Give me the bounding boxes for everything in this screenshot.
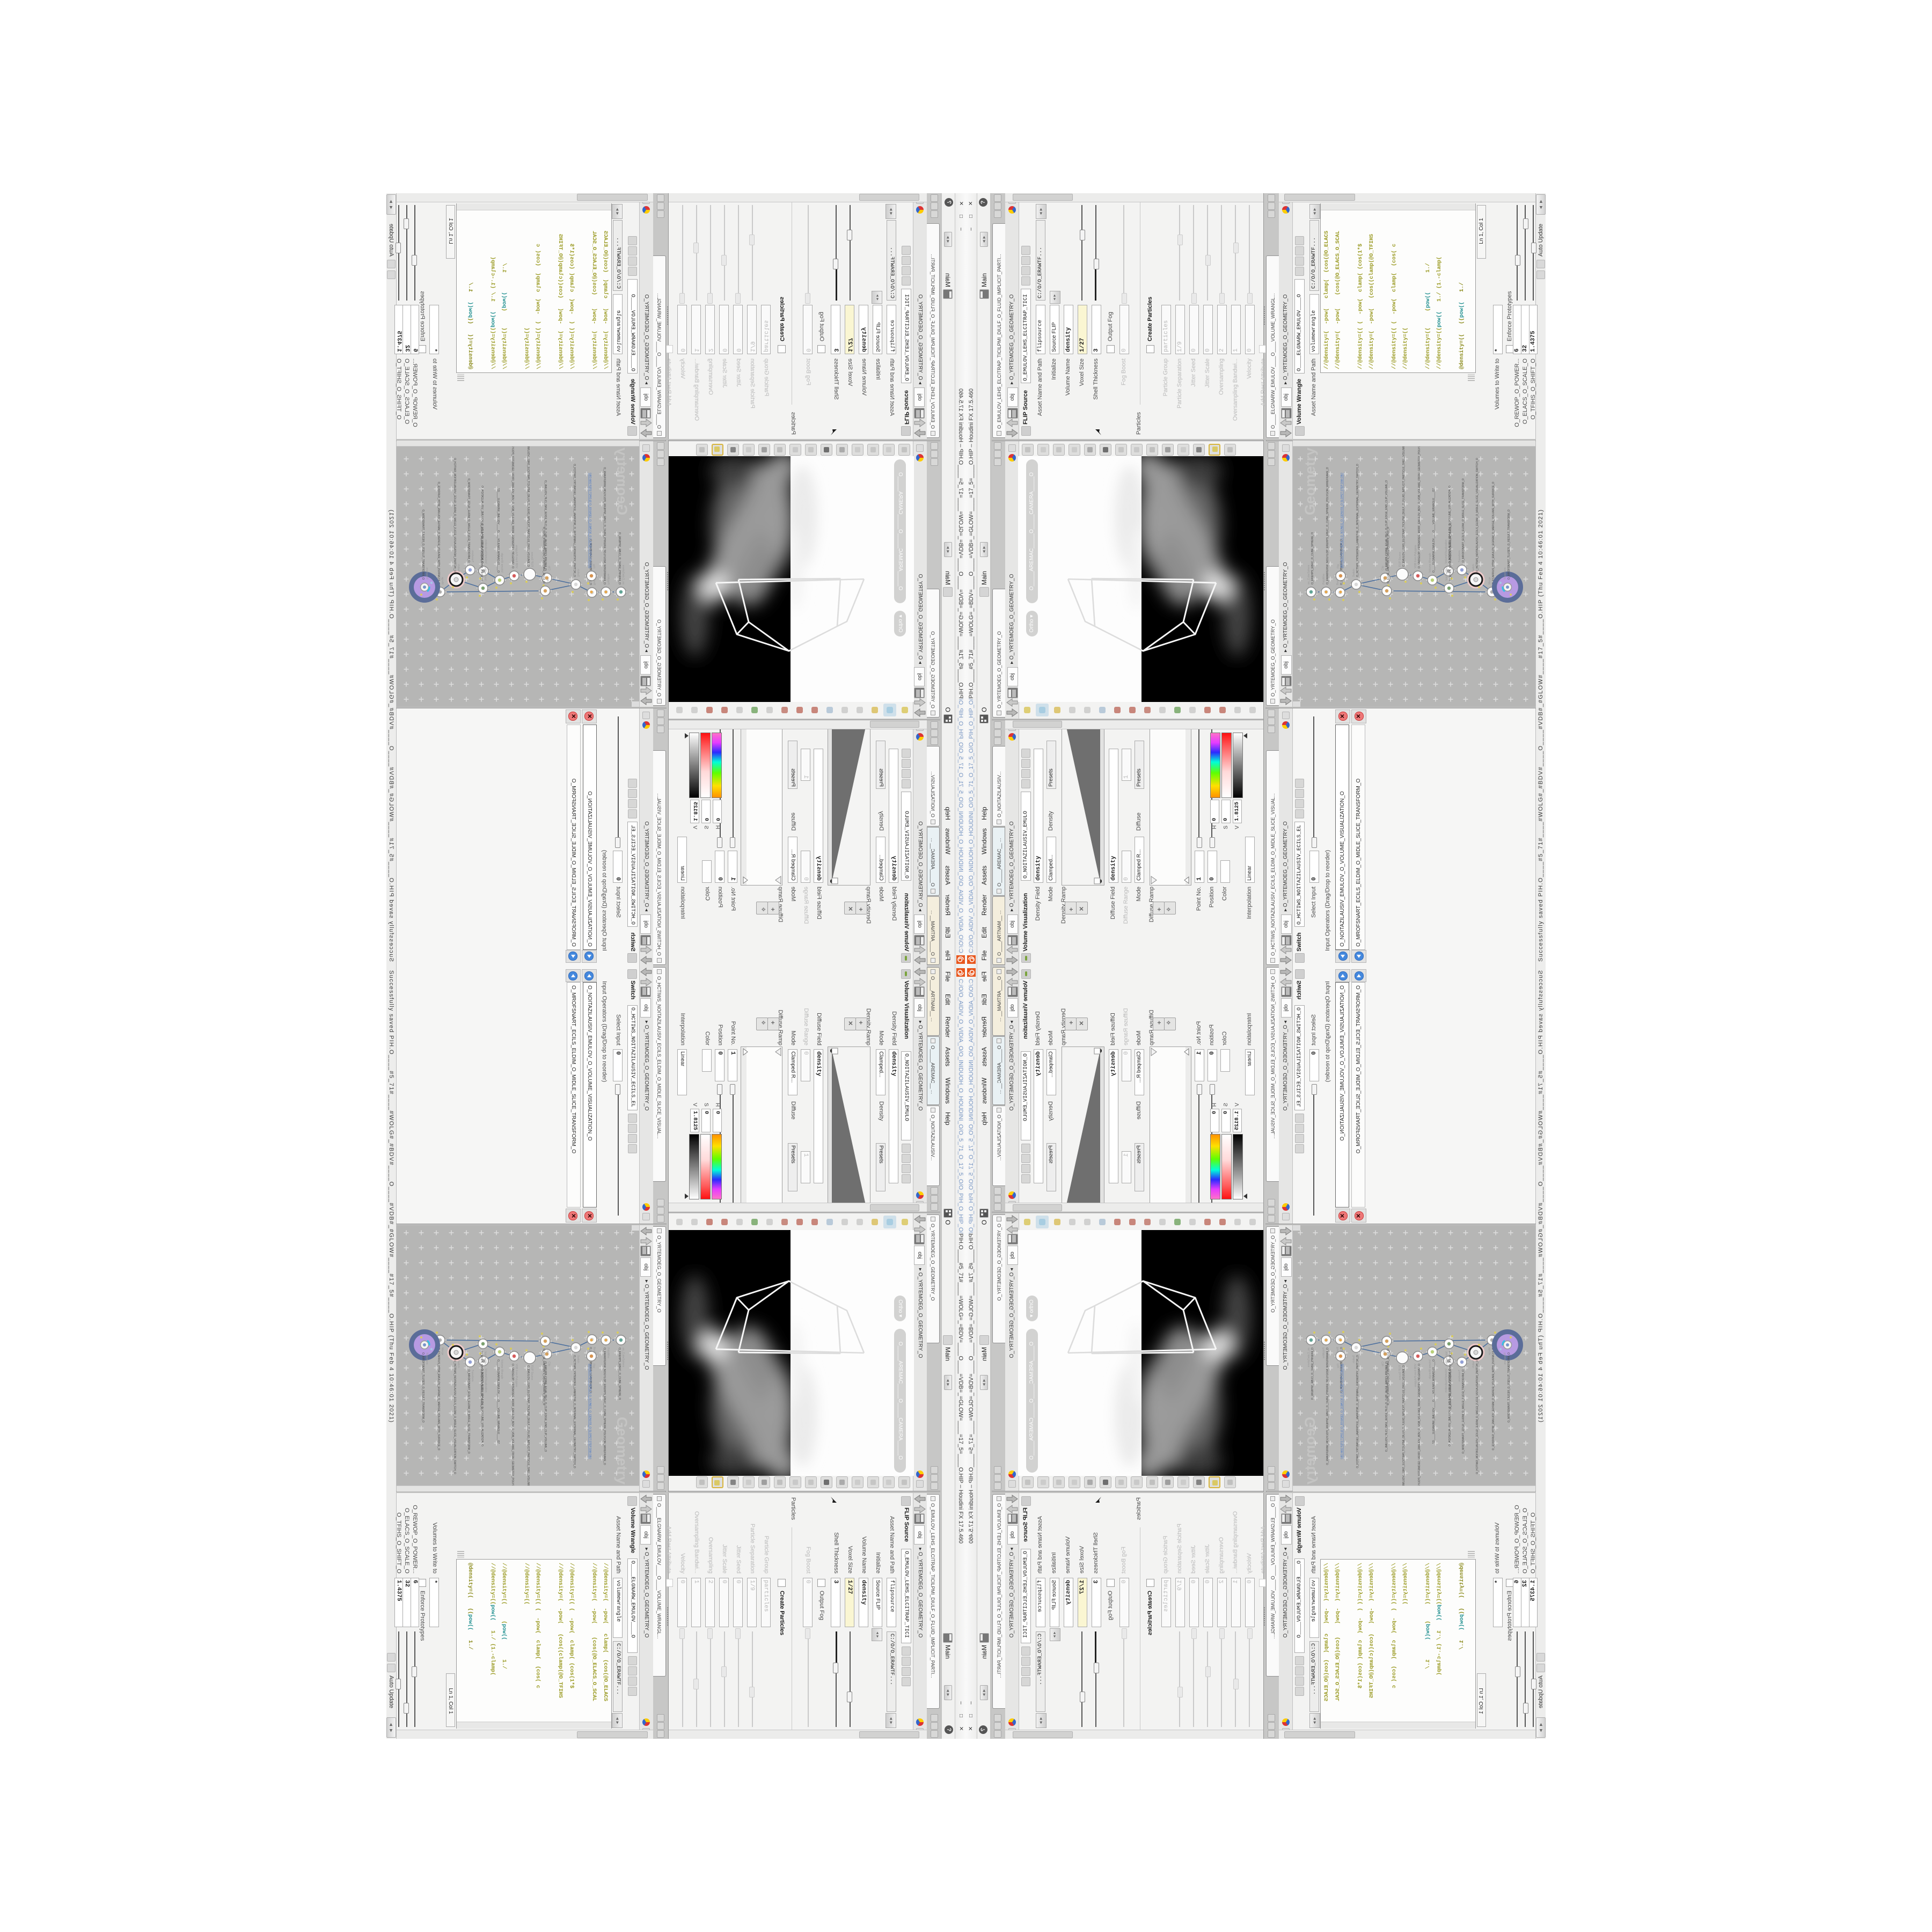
svg-text:Merge: Merge (441, 577, 444, 584)
svg-text:VolumeVisualization: VolumeVisualization (484, 1368, 487, 1393)
svg-text:O_MROFSNART_TLUSER_O_RESULT_TR: O_MROFSNART_TLUSER_O_RESULT_TRANSFORM_O (1507, 509, 1511, 580)
svg-text:O_EREHPS_EBUC_O_CUBE_SPHERE_O: O_EREHPS_EBUC_O_CUBE_SPHERE_O (618, 532, 621, 584)
svg-text:O_EGdE_GNITRATS_O(CLIP)TRATS_P: O_EGdE_GNITRATS_O(CLIP)TRATS_PILC_O (1387, 1349, 1390, 1406)
svg-text:O____ELGNARW_EMULOV____O____VO: O____ELGNARW_EMULOV____O____VOLUME_WRANG… (1432, 1359, 1436, 1444)
svg-text:O____ELGNARW_EMULOV____O____VO: O____ELGNARW_EMULOV____O____VOLUME_WRANG… (496, 1359, 500, 1444)
svg-text:O_ECAFRUS_HTIW_EMULOV_EGREM_O_: O_ECAFRUS_HTIW_EMULOV_EGREM_O_MERGE_VOLU… (437, 1348, 440, 1451)
svg-text:O_SNOGLOP_YRTEMOEG_MORF_EMULOV: O_SNOGLOP_YRTEMOEG_MORF_EMULOV_BDV_O_VDB… (1418, 1364, 1421, 1489)
svg-text:Transform: Transform (471, 550, 474, 562)
svg-text:FLIP Source: FLIP Source (530, 552, 533, 567)
svg-text:O_HCTIWS_YRTEMOEG_LANRETXE_O_I: O_HCTIWS_YRTEMOEG_LANRETXE_O_INTERNAL_EX… (1356, 464, 1359, 577)
svg-text:O_HCTIWS_NOITAZILAUSIV_ECILS_E: O_HCTIWS_NOITAZILAUSIV_ECILS_ELDIM_O_MID… (1476, 458, 1479, 572)
svg-text:O_MROFSNART_ECILS_ELDIM_O_MIDL: O_MROFSNART_ECILS_ELDIM_O_MIDLE_SLICE_TR… (1462, 1370, 1465, 1454)
svg-text:an_CubeSphere: an_CubeSphere (1307, 565, 1311, 584)
svg-text:O____ELGNARW_EMULOV____O____VO: O____ELGNARW_EMULOV____O____VOLUME_WRANG… (1432, 488, 1436, 573)
svg-text:an_CubeSphere: an_CubeSphere (621, 1348, 625, 1367)
svg-text:O_EREHPS_EBUC_O_CUBE_SPHERE_O: O_EREHPS_EBUC_O_CUBE_SPHERE_O (1311, 1348, 1314, 1400)
svg-text:VolumeVisualization: VolumeVisualization (484, 539, 487, 563)
svg-text:VDB from Polygons: VDB from Polygons (515, 545, 518, 568)
svg-text:JBO.M03.PETS.TEPOLS.O_5OJNEG_O: JBO.M03.PETS.TEPOLS.O_5OJNEG_O_GENUS5_O.… (588, 473, 591, 568)
svg-text:O_MROFSNART_ECILS_ELDIM_O_MIDL: O_MROFSNART_ECILS_ELDIM_O_MIDLE_SLICE_TR… (467, 478, 470, 562)
svg-text:O_MROFSNART_TLUSER_O_RESULT_TR: O_MROFSNART_TLUSER_O_RESULT_TRANSFORM_O (1507, 1352, 1511, 1423)
svg-text:O_HCTIWS_NOITAZILAUSIV_ECILS_E: O_HCTIWS_NOITAZILAUSIV_ECILS_ELDIM_O_MID… (1476, 1360, 1479, 1474)
svg-text:Switch: Switch (457, 1360, 460, 1368)
svg-text:Clip: Clip (546, 1349, 549, 1353)
svg-text:FLIP Source: FLIP Source (1399, 1365, 1402, 1380)
svg-text:O_EMARFERIW_NOGYLOP_EREHPS_EBU: O_EMARFERIW_NOGYLOP_EREHPS_EBUC_O_CUBE_S… (1326, 1348, 1329, 1465)
svg-text:Geometry: Geometry (614, 1417, 630, 1484)
svg-text:VolumeVisualization: VolumeVisualization (1445, 539, 1448, 563)
svg-text:Switch: Switch (457, 564, 460, 572)
svg-text:Switch: Switch (576, 1355, 580, 1363)
svg-text:O_ECILS_EMULOV(ECILS)EMULOV_SL: O_ECILS_EMULOV(ECILS)EMULOV_SLICE_O (1449, 523, 1452, 581)
svg-text:PolyWire: PolyWire (606, 1348, 610, 1358)
svg-text:VolumeSlice: VolumeSlice (1445, 566, 1448, 581)
svg-text:Transform: Transform (1458, 1370, 1461, 1382)
svg-text:Merge: Merge (1488, 577, 1491, 584)
svg-text:Switch: Switch (1472, 1360, 1475, 1368)
svg-text:O_HCTIWS_NOITAZILAUSIV_ECILS_E: O_HCTIWS_NOITAZILAUSIV_ECILS_ELDIM_O_MID… (453, 1360, 456, 1474)
svg-text:O_SNOGLOP_YRTEMOEG_MORF_EMULOV: O_SNOGLOP_YRTEMOEG_MORF_EMULOV_BDV_O_VDB… (511, 1364, 514, 1489)
svg-text:Geometry: Geometry (1302, 448, 1318, 515)
svg-text:Transform: Transform (1504, 1352, 1507, 1365)
svg-text:O____ELGNARW_EMULOV____O____VO: O____ELGNARW_EMULOV____O____VOLUME_WRANG… (496, 488, 500, 573)
svg-text:O_ECAFRUS_HTIW_EMULOV_EGREM_O_: O_ECAFRUS_HTIW_EMULOV_EGREM_O_MERGE_VOLU… (1492, 1348, 1495, 1451)
svg-text:VolumeSlice: VolumeSlice (1445, 1351, 1448, 1366)
svg-text:Merge: Merge (1488, 1348, 1491, 1355)
svg-text:Clip: Clip (1381, 566, 1385, 570)
svg-text:Clip: Clip (1383, 579, 1386, 583)
svg-text:O_MROFSNART_ECILS_ELDIM_O_MIDL: O_MROFSNART_ECILS_ELDIM_O_MIDLE_SLICE_TR… (1462, 478, 1465, 562)
svg-text:Geometry: Geometry (614, 448, 630, 515)
svg-text:Clip: Clip (546, 579, 549, 583)
svg-text:File: File (592, 564, 595, 568)
svg-text:O_ECAFRUS_HTIW_EMULOV_EGREM_O_: O_ECAFRUS_HTIW_EMULOV_EGREM_O_MERGE_VOLU… (437, 481, 440, 584)
svg-text:Transform: Transform (471, 1370, 474, 1382)
svg-text:O_HCTIWS_YRTEMOEG_LANRETXE_O_I: O_HCTIWS_YRTEMOEG_LANRETXE_O_INTERNAL_EX… (573, 1355, 576, 1468)
svg-text:VolumeSlice: VolumeSlice (484, 566, 487, 581)
svg-text:O_EMARFERIW_NOGYLOP_EREHPS_EBU: O_EMARFERIW_NOGYLOP_EREHPS_EBUC_O_CUBE_S… (603, 467, 606, 584)
svg-text:Transform: Transform (425, 1352, 428, 1365)
svg-text:Transform: Transform (1504, 567, 1507, 580)
svg-text:File: File (1337, 564, 1340, 568)
svg-text:Clip: Clip (1383, 1349, 1386, 1353)
svg-text:O_ECILS_EMULOV(ECILS)EMULOV_SL: O_ECILS_EMULOV(ECILS)EMULOV_SLICE_O (480, 523, 483, 581)
svg-text:O_EGdE_GNITRATS_O(CLIP)TRATS_P: O_EGdE_GNITRATS_O(CLIP)TRATS_PILC_O (542, 526, 545, 583)
svg-text:O_EMULOV_LEHS_ELCITRAP_TICILPM: O_EMULOV_LEHS_ELCITRAP_TICILPMI_DIULF_O_… (1402, 1365, 1406, 1490)
svg-text:O_EMULOV_LEHS_ELCITRAP_TICILPM: O_EMULOV_LEHS_ELCITRAP_TICILPMI_DIULF_O_… (526, 1365, 530, 1490)
svg-text:Clip: Clip (547, 566, 551, 570)
svg-text:VolumeSlice: VolumeSlice (484, 1351, 487, 1366)
svg-text:Switch: Switch (1352, 569, 1356, 577)
svg-text:JBO.M03.PETS.TEPOLS.O_5OJNEG_O: JBO.M03.PETS.TEPOLS.O_5OJNEG_O_GENUS5_O.… (588, 1364, 591, 1459)
svg-text:Volume Wrangle: Volume Wrangle (1429, 553, 1432, 573)
svg-text:Switch: Switch (576, 569, 580, 577)
svg-text:O_MROFSNART_TLUSER_O_RESULT_TR: O_MROFSNART_TLUSER_O_RESULT_TRANSFORM_O (421, 509, 425, 580)
svg-text:O_EMULOV_LEHS_ELCITRAP_TICILPM: O_EMULOV_LEHS_ELCITRAP_TICILPMI_DIULF_O_… (526, 442, 530, 567)
svg-text:an_CubeSphere: an_CubeSphere (621, 565, 625, 584)
svg-text:File: File (592, 1364, 595, 1368)
svg-text:O_EGdE_GNITRATS_O(CLIP)TRATS_P: O_EGdE_GNITRATS_O(CLIP)TRATS_PILC_O (1387, 526, 1390, 583)
svg-text:O_MROFSNART_TLUSER_O_RESULT_TR: O_MROFSNART_TLUSER_O_RESULT_TRANSFORM_O (421, 1352, 425, 1423)
svg-text:Clip: Clip (1381, 1362, 1385, 1366)
svg-text:O_SNOGLOP_YRTEMOEG_MORF_EMULOV: O_SNOGLOP_YRTEMOEG_MORF_EMULOV_BDV_O_VDB… (1418, 443, 1421, 568)
svg-text:PolyWire: PolyWire (1322, 574, 1326, 584)
svg-text:Transform: Transform (425, 567, 428, 580)
svg-text:O_EMARFERIW_NOGYLOP_EREHPS_EBU: O_EMARFERIW_NOGYLOP_EREHPS_EBUC_O_CUBE_S… (1326, 467, 1329, 584)
svg-text:O_EREHPS_EBUC_O_CUBE_SPHERE_O: O_EREHPS_EBUC_O_CUBE_SPHERE_O (1311, 532, 1314, 584)
svg-text:O_EMARFERIW_NOGYLOP_EREHPS_EBU: O_EMARFERIW_NOGYLOP_EREHPS_EBUC_O_CUBE_S… (603, 1348, 606, 1465)
svg-text:FLIP Source: FLIP Source (530, 1365, 533, 1380)
svg-text:JBO.M03.PETS.TEPOLS.O_5OJNEG_O: JBO.M03.PETS.TEPOLS.O_5OJNEG_O_GENUS5_O.… (1341, 473, 1344, 568)
svg-text:O_HCTIWS_YRTEMOEG_LANRETXE_O_I: O_HCTIWS_YRTEMOEG_LANRETXE_O_INTERNAL_EX… (573, 464, 576, 577)
svg-text:an_CubeSphere: an_CubeSphere (1307, 1348, 1311, 1367)
svg-text:Switch: Switch (1352, 1355, 1356, 1363)
svg-text:O_HCTIWS_YRTEMOEG_LANRETXE_O_I: O_HCTIWS_YRTEMOEG_LANRETXE_O_INTERNAL_EX… (1356, 1355, 1359, 1468)
svg-text:Transform: Transform (1458, 550, 1461, 562)
svg-text:Merge: Merge (441, 1348, 444, 1355)
svg-text:VolumeVisualization: VolumeVisualization (1445, 1368, 1448, 1393)
svg-text:Geometry: Geometry (1302, 1417, 1318, 1484)
svg-text:FLIP Source: FLIP Source (1399, 552, 1402, 567)
svg-text:JBO.M03.PETS.TEPOLS.O_5OJNEG_O: JBO.M03.PETS.TEPOLS.O_5OJNEG_O_GENUS5_O.… (1341, 1364, 1344, 1459)
svg-text:O_EMULOV_LEHS_ELCITRAP_TICILPM: O_EMULOV_LEHS_ELCITRAP_TICILPMI_DIULF_O_… (1402, 442, 1406, 567)
svg-text:Switch: Switch (1472, 564, 1475, 572)
svg-text:VDB from Polygons: VDB from Polygons (515, 1364, 518, 1387)
svg-text:PolyWire: PolyWire (1322, 1348, 1326, 1358)
svg-text:O_EGdE_GNITRATS_O(CLIP)TRATS_P: O_EGdE_GNITRATS_O(CLIP)TRATS_PILC_O (542, 1349, 545, 1406)
svg-text:VDB from Polygons: VDB from Polygons (1414, 1364, 1417, 1387)
svg-text:PolyWire: PolyWire (606, 574, 610, 584)
svg-text:Volume Wrangle: Volume Wrangle (1429, 1359, 1432, 1379)
svg-text:VDB from Polygons: VDB from Polygons (1414, 545, 1417, 568)
svg-text:File: File (1337, 1364, 1340, 1368)
svg-text:O_ECILS_EMULOV(ECILS)EMULOV_SL: O_ECILS_EMULOV(ECILS)EMULOV_SLICE_O (1449, 1351, 1452, 1409)
svg-text:O_MROFSNART_ECILS_ELDIM_O_MIDL: O_MROFSNART_ECILS_ELDIM_O_MIDLE_SLICE_TR… (467, 1370, 470, 1454)
svg-text:O_HCTIWS_NOITAZILAUSIV_ECILS_E: O_HCTIWS_NOITAZILAUSIV_ECILS_ELDIM_O_MID… (453, 458, 456, 572)
svg-text:O_SNOGLOP_YRTEMOEG_MORF_EMULOV: O_SNOGLOP_YRTEMOEG_MORF_EMULOV_BDV_O_VDB… (511, 443, 514, 568)
svg-text:O_ECAFRUS_HTIW_EMULOV_EGREM_O_: O_ECAFRUS_HTIW_EMULOV_EGREM_O_MERGE_VOLU… (1492, 481, 1495, 584)
svg-text:O_EREHPS_EBUC_O_CUBE_SPHERE_O: O_EREHPS_EBUC_O_CUBE_SPHERE_O (618, 1348, 621, 1400)
svg-text:Volume Wrangle: Volume Wrangle (500, 553, 503, 573)
svg-text:O_ECILS_EMULOV(ECILS)EMULOV_SL: O_ECILS_EMULOV(ECILS)EMULOV_SLICE_O (480, 1351, 483, 1409)
svg-text:Volume Wrangle: Volume Wrangle (500, 1359, 503, 1379)
svg-text:Clip: Clip (547, 1362, 551, 1366)
